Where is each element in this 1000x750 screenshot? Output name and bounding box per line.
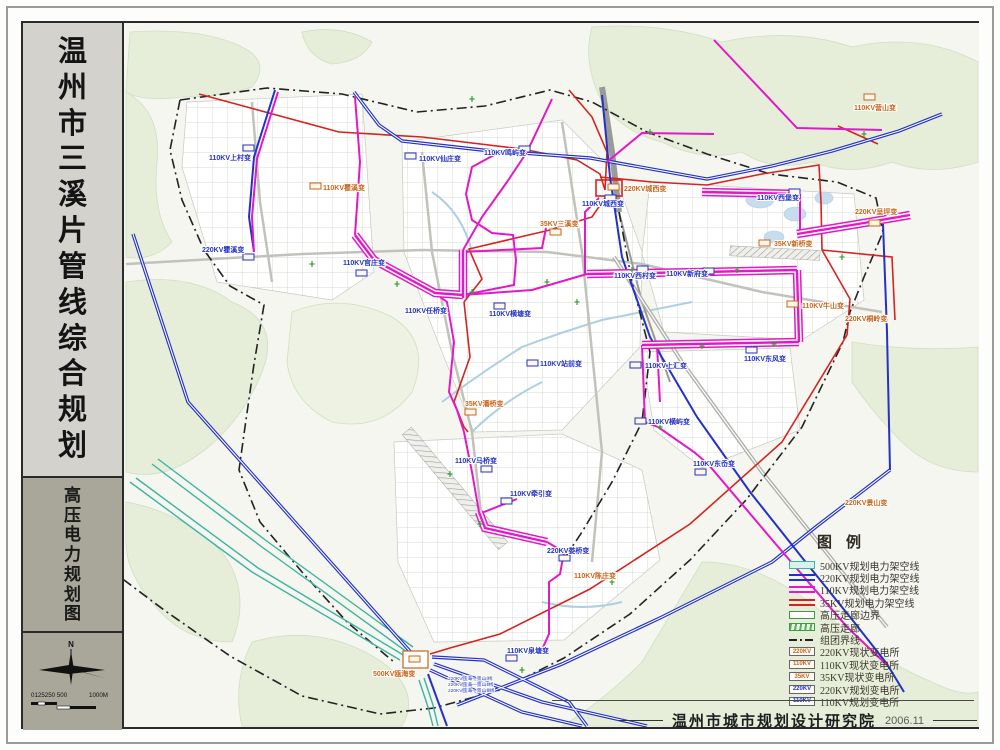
title-char: 三 xyxy=(58,145,87,174)
title-char: 综 xyxy=(58,325,87,354)
substation-label: 110KV站前变 xyxy=(540,359,582,368)
substation-marker xyxy=(494,303,505,309)
substation-label: 110KV官庄变 xyxy=(343,258,385,267)
title-char: 片 xyxy=(58,217,87,246)
substation-marker xyxy=(243,145,254,151)
scale-text-left: 0125250 500 xyxy=(31,692,68,699)
legend-swatch-icon: 35KV xyxy=(789,672,815,681)
credit-rule xyxy=(552,700,974,701)
title-sidebar: 温州市三溪片管线综合规划 高压电力规划图 N 0125250 500 1000M xyxy=(23,23,124,727)
scale-bar: 0125250 500 1000M xyxy=(31,692,108,709)
substation-label: 220KV桐岭变 xyxy=(845,314,887,323)
substation-label: 110KV陈庄变 xyxy=(574,571,616,580)
substation-label: 110KV仙庄变 xyxy=(419,154,461,163)
substation-marker xyxy=(405,153,416,159)
title-char: 温 xyxy=(58,38,87,67)
legend-swatch-icon xyxy=(789,611,815,619)
title-char: 图 xyxy=(64,605,81,622)
substation-label: 220KV瞿溪变 xyxy=(202,245,244,254)
substation-label: 220KV景山变 xyxy=(845,498,887,507)
legend-item: 35KV规划电力架空线 xyxy=(789,596,974,608)
substation-label: 110KV上汇变 xyxy=(645,361,687,370)
substation-label: 110KV城西变 xyxy=(582,199,624,208)
legend-swatch-icon xyxy=(789,639,815,641)
substation-label: 110KV营山变 xyxy=(854,103,896,112)
legend-item: 110KV110KV规划变电所 xyxy=(789,695,974,707)
substation-label: 35KV三溪变 xyxy=(540,219,579,228)
substation-label: 110KV东岙变 xyxy=(693,459,735,468)
substation-label: 35KV新桥变 xyxy=(774,239,813,248)
substation-marker xyxy=(527,360,538,366)
planning-map-sheet: 温州市三溪片管线综合规划 高压电力规划图 N 0125250 500 1000M xyxy=(0,0,1000,750)
legend-item: 高压走廊 xyxy=(789,621,974,633)
north-arrow-icon: N xyxy=(39,640,107,685)
substation-marker xyxy=(787,301,798,307)
legend-swatch-icon xyxy=(789,586,815,593)
substation-marker xyxy=(501,498,512,504)
substation-marker xyxy=(310,183,321,189)
substation-label: 110KV西堡变 xyxy=(757,193,799,202)
substation-label: 110KV横塘变 xyxy=(489,309,531,318)
title-char: 划 xyxy=(64,586,81,603)
scale-text-right: 1000M xyxy=(89,692,108,699)
map-subtitle-vertical: 高压电力规划图 xyxy=(23,478,122,633)
legend-swatch-icon: 110KV xyxy=(789,697,815,706)
legend-swatch-icon xyxy=(789,599,815,606)
credit-right-rule xyxy=(933,720,977,721)
substation-marker xyxy=(869,220,880,226)
line-name-label: 220KV瓯海—景山Ⅲ线 xyxy=(448,687,495,694)
substation-label: 110KV任桥变 xyxy=(405,306,447,315)
substation-label: 110KV鸣屿变 xyxy=(484,148,526,157)
north-label: N xyxy=(68,640,74,649)
map-title-vertical: 温州市三溪片管线综合规划 xyxy=(23,23,122,478)
legend: 图例 500KV规划电力架空线220KV规划电力架空线110KV规划电力架空线3… xyxy=(789,531,974,708)
substation-label: 220KV城西变 xyxy=(624,184,666,193)
substation-marker xyxy=(356,270,367,276)
substation-marker xyxy=(630,362,641,368)
credit-left-rule xyxy=(619,720,663,721)
substation-label: 110KV西村变 xyxy=(614,271,656,280)
legend-swatch-icon xyxy=(789,574,815,581)
title-char: 合 xyxy=(58,360,87,389)
substation-marker xyxy=(243,254,254,260)
substation-marker xyxy=(759,240,770,246)
substation-label: 110KV新府变 xyxy=(666,269,708,278)
legend-label: 110KV规划变电所 xyxy=(820,694,899,709)
line-name-label: 220KV瓯海—景山Ⅱ线 xyxy=(448,681,494,688)
substation-label: 110KV上村变 xyxy=(209,153,251,162)
legend-swatch-icon: 220KV xyxy=(789,647,815,656)
title-char: 线 xyxy=(58,289,87,318)
substation-label: 220KV娄桥变 xyxy=(547,546,589,555)
credit-organization: 温州市城市规划设计研究院 xyxy=(672,710,876,731)
compass-panel: N 0125250 500 1000M xyxy=(23,633,122,730)
legend-swatch-icon xyxy=(789,561,815,569)
substation-label: 500KV瓯海变 xyxy=(373,669,415,678)
substation-marker xyxy=(506,655,517,661)
title-char: 划 xyxy=(58,432,87,461)
substation-marker xyxy=(746,347,757,353)
legend-item: 高压走廊边界 xyxy=(789,609,974,621)
substation-marker xyxy=(608,184,619,190)
substation-marker xyxy=(635,418,646,424)
substation-label: 110KV瞿溪变 xyxy=(323,183,365,192)
substation-label: 220KV呈坪变 xyxy=(855,207,897,216)
substation-label: 110KV马桥变 xyxy=(455,456,497,465)
line-name-label: 220KV瓯海—景山Ⅰ线 xyxy=(448,675,493,682)
title-char: 压 xyxy=(64,507,81,524)
substation-label: 110KV牛山变 xyxy=(802,301,844,310)
substation-label: 110KV横屿变 xyxy=(648,417,690,426)
substation-marker xyxy=(465,409,476,415)
substation-label: 110KV泉塘变 xyxy=(507,646,549,655)
substation-marker xyxy=(695,469,706,475)
legend-swatch-icon: 220KV xyxy=(789,685,815,694)
credit-bar: 温州市城市规划设计研究院 2006.11 xyxy=(545,710,977,731)
substation-label: 35KV潘桥变 xyxy=(465,399,504,408)
substation-marker xyxy=(559,555,570,561)
title-char: 力 xyxy=(64,546,81,563)
line-name-labels: 220KV瓯海—景山Ⅰ线220KV瓯海—景山Ⅱ线220KV瓯海—景山Ⅲ线 xyxy=(448,675,495,694)
substation-marker xyxy=(481,466,492,472)
title-char: 州 xyxy=(58,74,87,103)
legend-title: 图例 xyxy=(817,531,974,552)
title-char: 溪 xyxy=(58,181,87,210)
substation-label: 110KV东风变 xyxy=(744,354,786,363)
substation-marker xyxy=(409,656,420,662)
substation-marker xyxy=(550,229,561,235)
title-char: 高 xyxy=(64,487,81,504)
title-char: 规 xyxy=(58,396,87,425)
substation-label: 110KV牵引变 xyxy=(510,489,552,498)
title-char: 市 xyxy=(58,110,87,139)
title-char: 管 xyxy=(58,253,87,282)
title-char: 规 xyxy=(64,566,81,583)
substation-marker xyxy=(864,94,875,100)
credit-date: 2006.11 xyxy=(885,715,924,727)
legend-swatch-icon xyxy=(789,623,815,631)
title-char: 电 xyxy=(64,526,81,543)
legend-swatch-icon: 110KV xyxy=(789,660,815,669)
substation-marker xyxy=(637,266,648,272)
legend-rows: 500KV规划电力架空线220KV规划电力架空线110KV规划电力架空线35KV… xyxy=(789,559,974,708)
